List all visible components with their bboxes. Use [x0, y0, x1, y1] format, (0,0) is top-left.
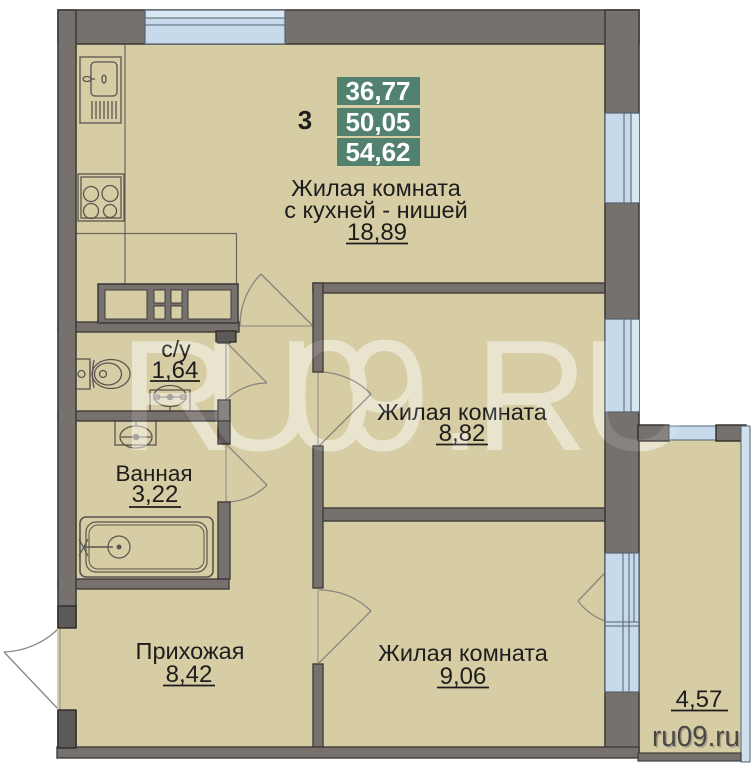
svg-text:36,77: 36,77	[345, 76, 410, 106]
svg-text:3,22: 3,22	[132, 481, 179, 508]
svg-text:8,42: 8,42	[166, 661, 213, 688]
svg-text:3: 3	[298, 105, 312, 135]
svg-text:.RU: .RU	[438, 308, 695, 484]
svg-text:ru09.ru: ru09.ru	[652, 721, 740, 753]
svg-text:4,57: 4,57	[676, 686, 723, 713]
svg-text:RU09: RU09	[119, 308, 430, 484]
svg-text:9,06: 9,06	[440, 663, 487, 690]
svg-text:50,05: 50,05	[345, 107, 410, 137]
svg-text:18,89: 18,89	[347, 219, 407, 246]
svg-text:54,62: 54,62	[345, 137, 410, 167]
